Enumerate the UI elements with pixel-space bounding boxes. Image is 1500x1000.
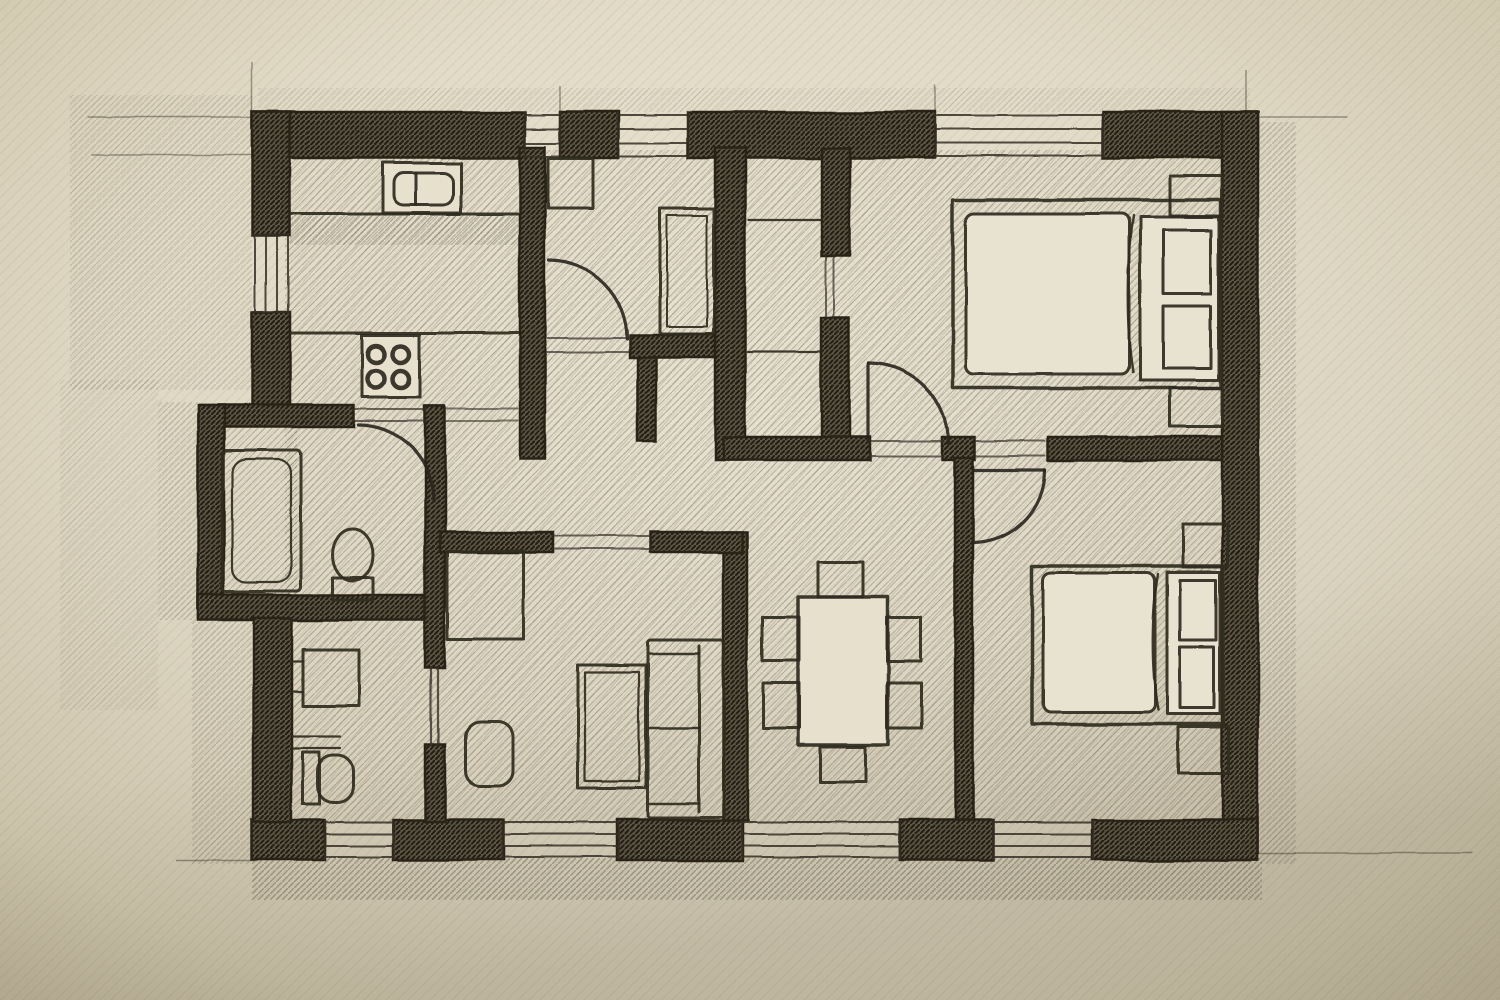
wall-segment — [393, 820, 503, 860]
wall-segment — [618, 820, 742, 860]
wall-segment — [723, 437, 870, 460]
wall-segment — [1093, 820, 1258, 860]
wall-segment — [520, 148, 545, 458]
wall-segment — [822, 148, 850, 255]
floor-plan-sketch — [0, 0, 1500, 1000]
wall-segment — [630, 335, 717, 358]
headboard — [1140, 217, 1219, 380]
dining-table — [798, 597, 888, 745]
wall-segment — [715, 148, 745, 460]
wall-segment — [900, 820, 993, 860]
sketch-photo — [0, 0, 1500, 1000]
wall-segment — [425, 745, 445, 822]
wall-segment — [198, 595, 445, 620]
wall-segment — [440, 532, 553, 552]
wall-segment — [955, 458, 973, 820]
headboard — [1167, 572, 1220, 714]
wall-segment — [560, 112, 618, 158]
wall-segment — [638, 358, 656, 442]
wall-segment — [252, 820, 325, 860]
wall-segment — [723, 532, 747, 820]
wall-segment — [198, 405, 224, 618]
wall-segment — [252, 312, 290, 412]
wall-segment — [1047, 437, 1222, 460]
wall-segment — [254, 618, 292, 822]
wall-segment — [650, 532, 742, 552]
wall-segment — [252, 112, 525, 158]
mattress — [1043, 573, 1155, 712]
mattress — [966, 214, 1129, 374]
wall-segment — [822, 317, 850, 447]
wall-segment — [252, 112, 290, 235]
